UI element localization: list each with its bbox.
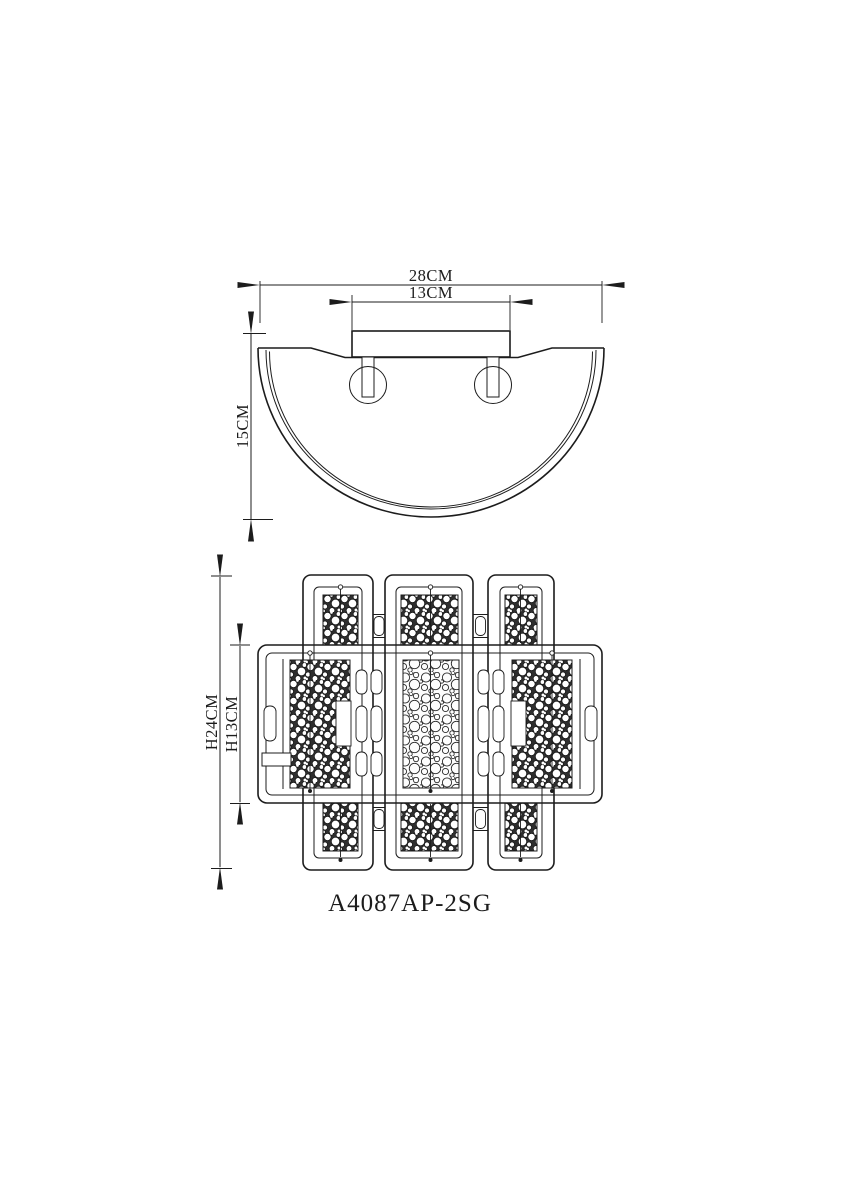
front-height-shade-label: H13CM [222, 696, 241, 753]
dimension-side-height: 15CM [233, 334, 273, 520]
crystal-notch-left [336, 701, 351, 746]
canopy-width-label: 13CM [409, 283, 453, 302]
socket-stem-left [362, 357, 374, 397]
mount-tab [262, 753, 291, 766]
canopy-plate [352, 331, 510, 357]
front-view: H24CM H13CM [202, 575, 602, 870]
lamp-socket-left [350, 357, 387, 404]
side-height-label: 15CM [233, 404, 252, 448]
spec-sheet-page: 28CM 13CM 15CM [0, 0, 849, 1200]
dimension-canopy-width: 13CM [352, 283, 510, 330]
socket-stem-right [487, 357, 499, 397]
front-height-total-label: H24CM [202, 694, 221, 751]
shade-inner-arc [266, 350, 596, 509]
technical-drawing: 28CM 13CM 15CM [0, 0, 849, 1200]
band-crystal-panels [290, 660, 572, 788]
model-code-label: A4087AP-2SG [328, 890, 492, 917]
crystal-notch-right [511, 701, 526, 746]
shade-inner-arc-2 [270, 352, 593, 507]
side-view: 28CM 13CM 15CM [233, 266, 604, 520]
dimension-front-height-shade: H13CM [222, 645, 250, 804]
lamp-socket-right [475, 357, 512, 404]
shade-outer-arc [258, 348, 604, 517]
